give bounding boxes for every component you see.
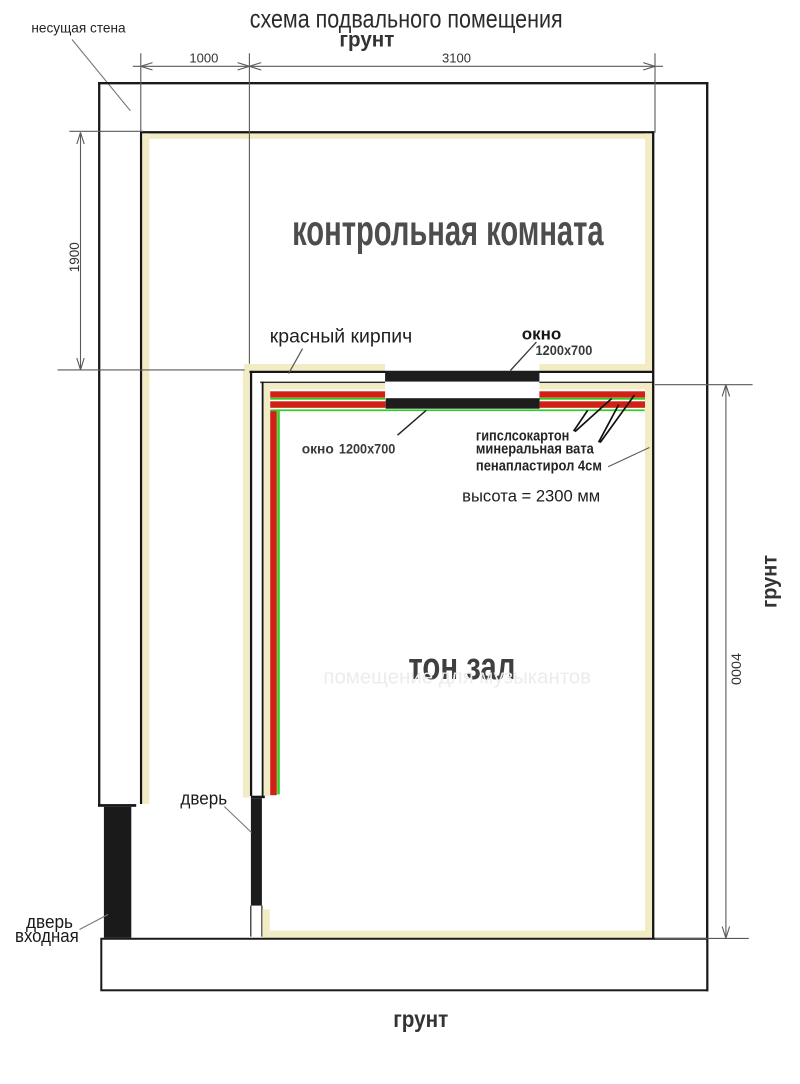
svg-text:1200x700: 1200x700	[536, 343, 593, 358]
svg-text:окно: окно	[522, 325, 562, 344]
svg-text:схема подвального помещения: схема подвального помещения	[250, 3, 563, 33]
svg-text:минеральная вата: минеральная вата	[476, 441, 594, 458]
svg-text:контрольная комната: контрольная комната	[292, 207, 604, 255]
svg-text:1000: 1000	[189, 50, 218, 65]
svg-text:грунт: грунт	[758, 555, 782, 608]
svg-text:окно: окно	[302, 441, 334, 456]
svg-text:дверь: дверь	[180, 788, 227, 808]
svg-text:грунт: грунт	[393, 1006, 448, 1032]
svg-text:несущая стена: несущая стена	[31, 19, 125, 35]
svg-text:красный кирпич: красный кирпич	[270, 326, 412, 348]
svg-text:пенапластирол 4см: пенапластирол 4см	[476, 458, 602, 475]
svg-text:грунт: грунт	[339, 28, 394, 52]
svg-text:1900: 1900	[67, 242, 82, 272]
svg-text:помещение для музыкантов: помещение для музыкантов	[323, 666, 591, 688]
svg-text:входная: входная	[15, 926, 79, 946]
svg-text:высота = 2300 мм: высота = 2300 мм	[462, 487, 600, 505]
svg-text:1200x700: 1200x700	[339, 441, 396, 456]
svg-text:3100: 3100	[442, 50, 471, 65]
svg-text:0004: 0004	[728, 653, 744, 685]
